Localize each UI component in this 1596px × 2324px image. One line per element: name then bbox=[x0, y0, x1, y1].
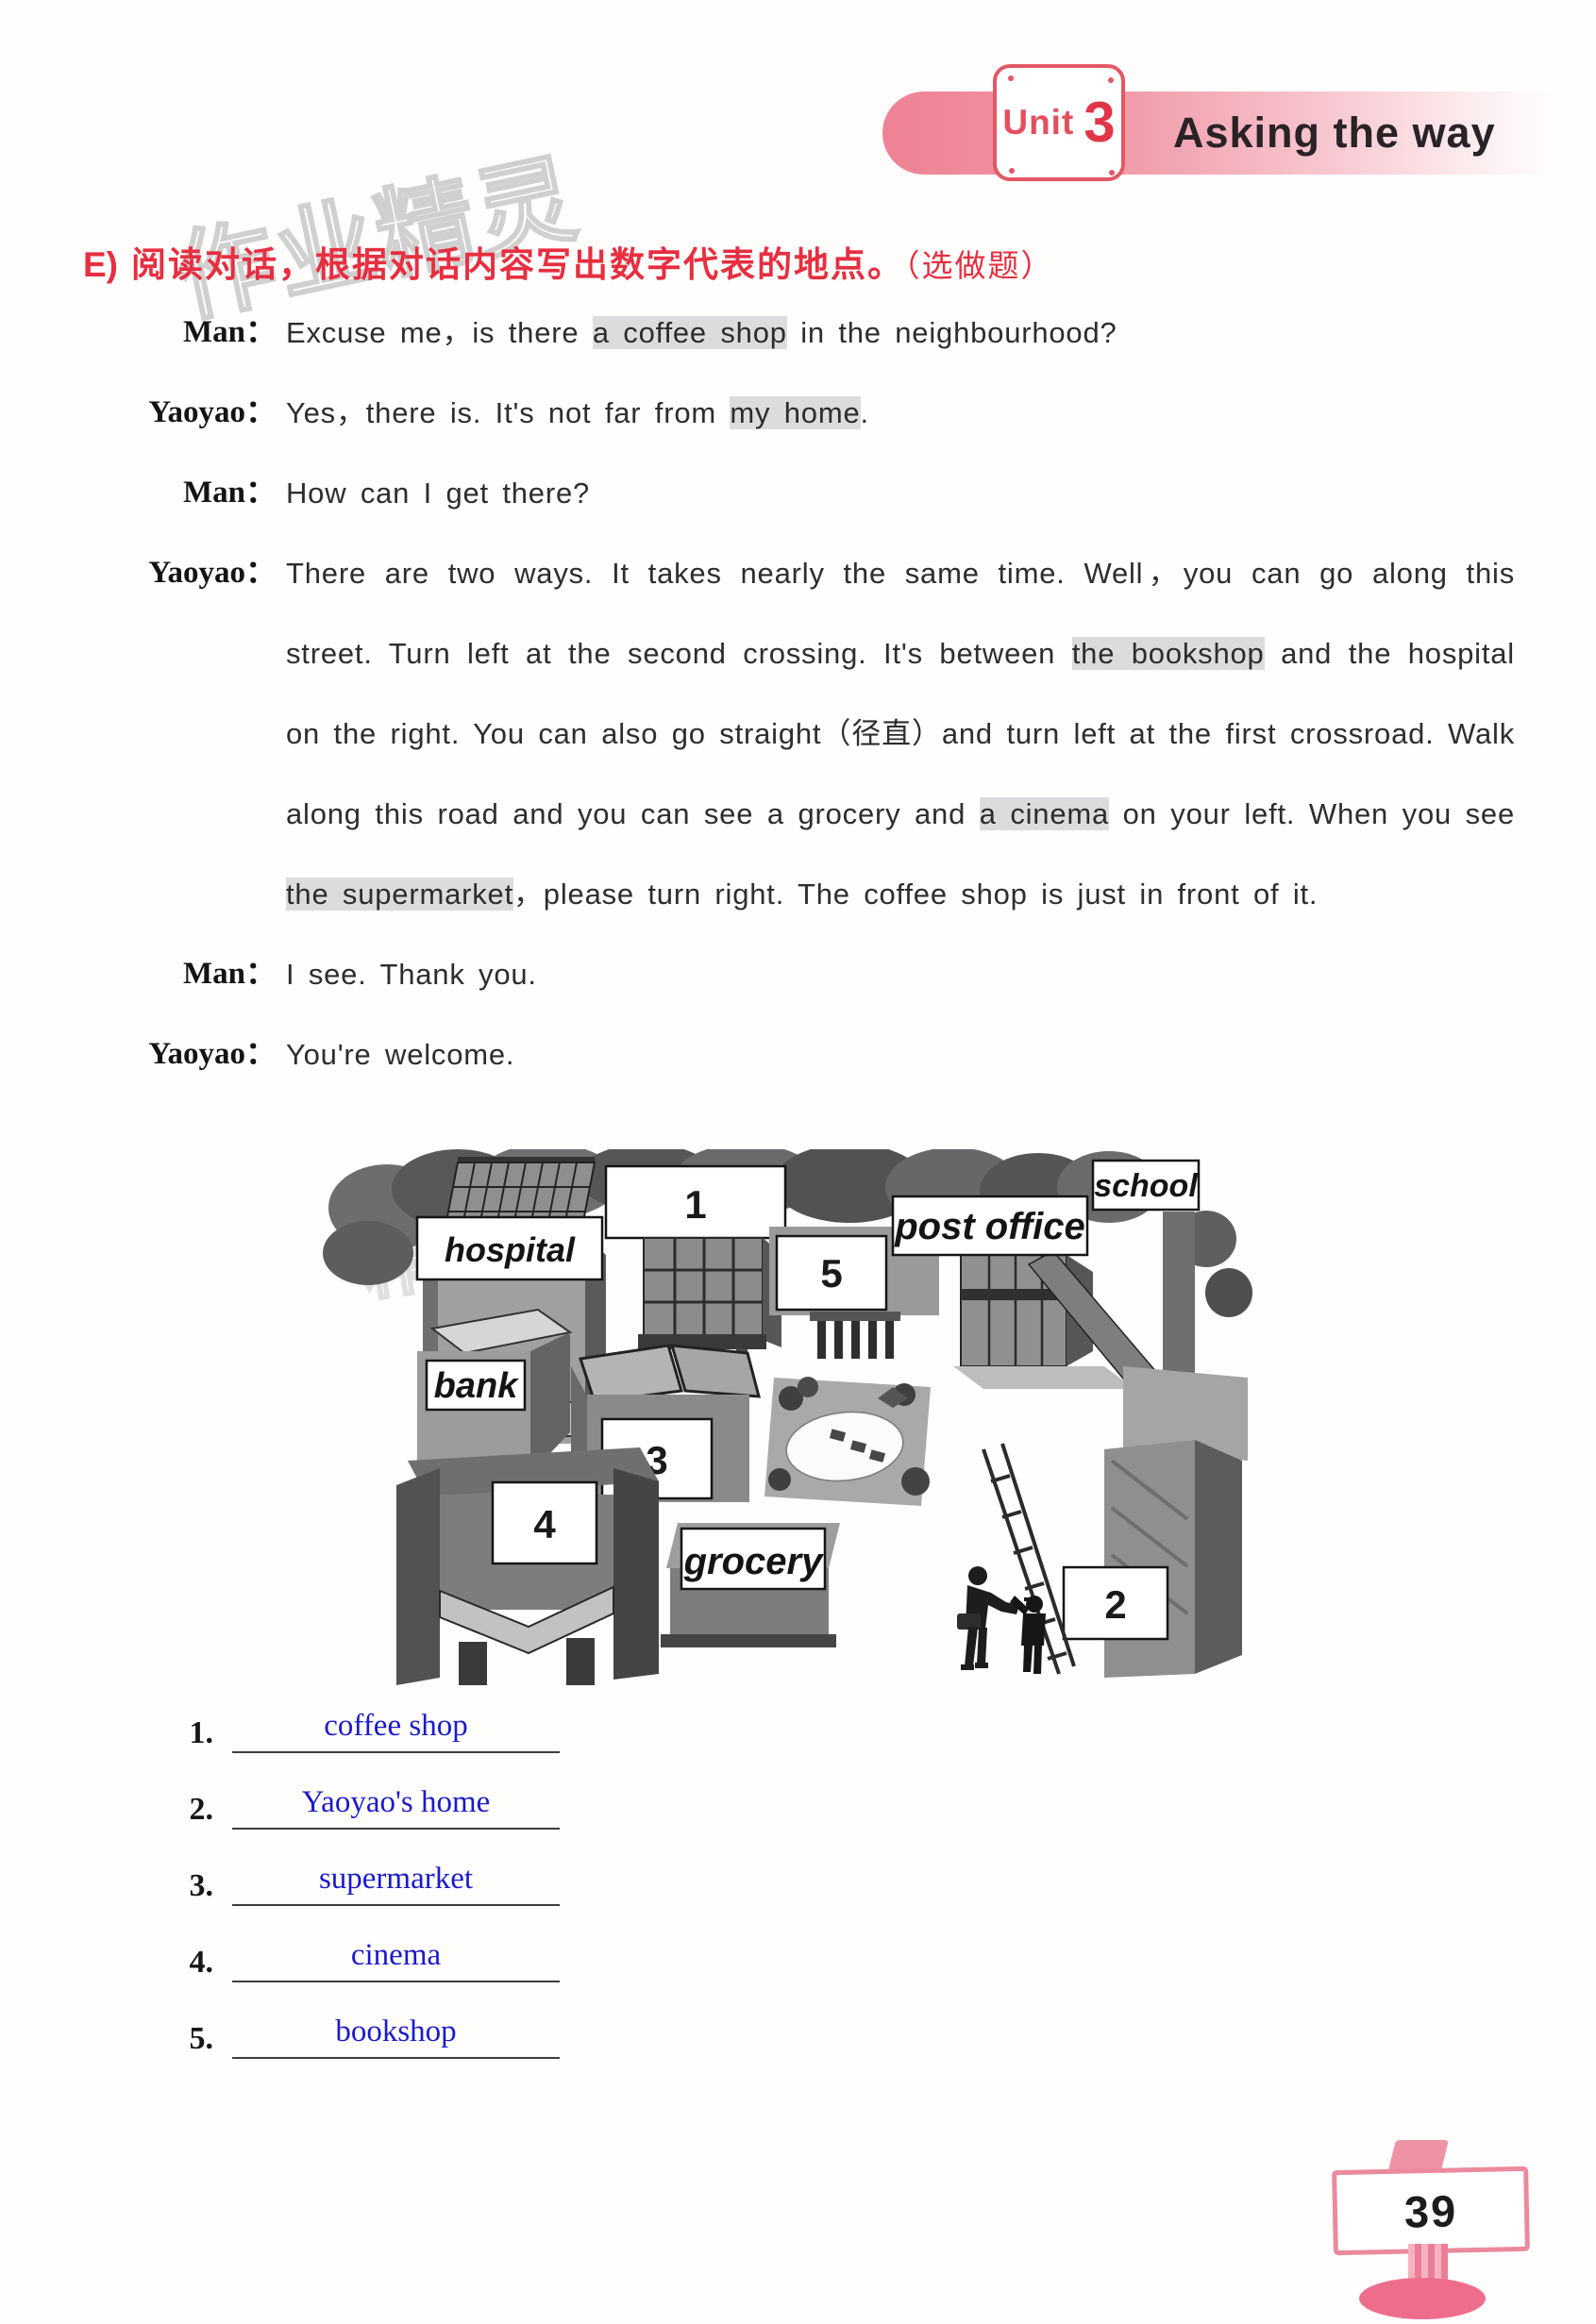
speech-segment: You're welcome. bbox=[286, 1038, 514, 1071]
highlighted-phrase: a coffee shop bbox=[593, 316, 787, 349]
speech-segment: ，please turn right. The coffee shop is j… bbox=[513, 878, 1318, 911]
dialogue: Man：Excuse me，is there a coffee shop in … bbox=[83, 293, 1515, 1095]
highlighted-phrase: my home bbox=[730, 396, 860, 429]
answer-row: 4.cinema bbox=[123, 1906, 708, 1982]
speaker-label: Man： bbox=[83, 293, 277, 373]
dialogue-turn: Yaoyao：You're welcome. bbox=[83, 1014, 1515, 1095]
map-number-1: 1 bbox=[684, 1182, 706, 1227]
speaker-label: Man： bbox=[83, 453, 277, 533]
answer-number: 2. bbox=[123, 1792, 213, 1830]
dialogue-turn: Man：Excuse me，is there a coffee shop in … bbox=[83, 293, 1515, 373]
unit-badge: Unit 3 bbox=[993, 64, 1125, 181]
unit-number: 3 bbox=[1084, 94, 1115, 151]
section-label: E) bbox=[83, 245, 118, 284]
post-office-sign: post office bbox=[894, 1206, 1085, 1247]
highlighted-phrase: the supermarket bbox=[286, 878, 513, 911]
park-area bbox=[764, 1377, 931, 1506]
page-number-plaque: 39 bbox=[1333, 2138, 1536, 2313]
speech-text: You're welcome. bbox=[277, 1014, 1515, 1095]
answer-number: 4. bbox=[123, 1945, 213, 1982]
map-illustration: hospital 1 bbox=[255, 1149, 1255, 1715]
speaker-label: Yaoyao： bbox=[83, 533, 277, 934]
answer-blank: supermarket bbox=[232, 1862, 560, 1906]
unit-label: Unit bbox=[1002, 103, 1074, 142]
answer-blank: Yaoyao's home bbox=[232, 1785, 560, 1830]
page-number: 39 bbox=[1332, 2166, 1530, 2255]
location-2-building: 2 bbox=[1064, 1366, 1248, 1678]
speech-text: There are two ways. It takes nearly the … bbox=[277, 533, 1515, 934]
speech-segment: How can I get there? bbox=[286, 477, 590, 510]
bank-sign: bank bbox=[434, 1366, 520, 1406]
answer-blank: cinema bbox=[232, 1938, 560, 1982]
speech-text: Yes，there is. It's not far from my home. bbox=[277, 373, 1515, 453]
grocery-sign: grocery bbox=[683, 1541, 824, 1582]
speech-segment: I see. Thank you. bbox=[286, 958, 537, 991]
answer-row: 2.Yaoyao's home bbox=[123, 1753, 708, 1830]
location-1-board: 1 bbox=[606, 1166, 785, 1238]
workbook-page: Unit 3 Asking the way 作业精灵 精灵 E)阅读对话，根据对… bbox=[0, 0, 1596, 2324]
speech-segment: in the neighbourhood? bbox=[787, 316, 1117, 349]
dialogue-turn: Man：I see. Thank you. bbox=[83, 934, 1515, 1014]
dialogue-turn: Yaoyao：There are two ways. It takes near… bbox=[83, 533, 1515, 934]
plaque-base bbox=[1359, 2278, 1486, 2319]
answer-number: 1. bbox=[123, 1715, 213, 1753]
grocery-building: grocery bbox=[661, 1523, 840, 1647]
speech-segment: on your left. When you see bbox=[1109, 797, 1515, 830]
answer-row: 5.bookshop bbox=[123, 1982, 708, 2059]
location-4-building: 4 bbox=[396, 1447, 659, 1685]
answer-blank: coffee shop bbox=[232, 1709, 560, 1753]
speaker-label: Man： bbox=[83, 934, 277, 1014]
speech-text: Excuse me，is there a coffee shop in the … bbox=[277, 293, 1515, 373]
map-number-5: 5 bbox=[820, 1251, 842, 1296]
section-instruction: 阅读对话，根据对话内容写出数字代表的地点。 bbox=[131, 245, 904, 284]
hospital-sign: hospital bbox=[445, 1230, 576, 1269]
answer-blank: bookshop bbox=[232, 2015, 560, 2059]
street-map-svg: hospital 1 bbox=[255, 1149, 1255, 1715]
speech-segment: Excuse me，is there bbox=[286, 316, 593, 349]
speaker-label: Yaoyao： bbox=[83, 1014, 277, 1095]
answer-number: 5. bbox=[123, 2021, 213, 2059]
speaker-label: Yaoyao： bbox=[83, 373, 277, 453]
dialogue-turn: Yaoyao：Yes，there is. It's not far from m… bbox=[83, 373, 1515, 453]
map-number-2: 2 bbox=[1104, 1582, 1126, 1627]
answers-list: 1.coffee shop2.Yaoyao's home3.supermarke… bbox=[123, 1677, 708, 2059]
school-sign: school bbox=[1094, 1168, 1199, 1204]
man-figure-icon bbox=[957, 1566, 1019, 1670]
speech-segment: Yes，there is. It's not far from bbox=[286, 396, 730, 429]
dialogue-turn: Man：How can I get there? bbox=[83, 453, 1515, 533]
answer-row: 3.supermarket bbox=[123, 1830, 708, 1906]
unit-title: Asking the way bbox=[1173, 92, 1496, 175]
section-note: （选做题） bbox=[904, 248, 1054, 283]
speech-text: How can I get there? bbox=[277, 453, 1515, 533]
speech-segment: . bbox=[861, 396, 869, 429]
badge-corner-dots bbox=[1008, 75, 1014, 81]
map-number-4: 4 bbox=[533, 1502, 556, 1547]
section-heading: E)阅读对话，根据对话内容写出数字代表的地点。（选做题） bbox=[83, 236, 1054, 287]
speech-text: I see. Thank you. bbox=[277, 934, 1515, 1014]
highlighted-phrase: the bookshop bbox=[1072, 637, 1265, 670]
answer-row: 1.coffee shop bbox=[123, 1677, 708, 1753]
answer-number: 3. bbox=[123, 1868, 213, 1906]
highlighted-phrase: a cinema bbox=[980, 797, 1109, 830]
